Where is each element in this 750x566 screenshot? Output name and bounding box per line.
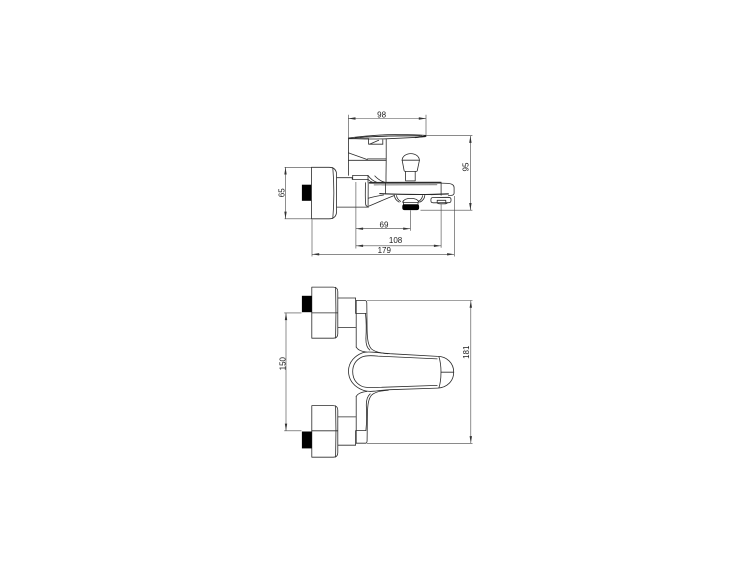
svg-text:181: 181 (462, 345, 471, 359)
svg-text:98: 98 (377, 111, 386, 120)
svg-text:65: 65 (278, 188, 287, 197)
svg-text:95: 95 (462, 162, 471, 171)
svg-text:108: 108 (389, 236, 403, 245)
svg-text:179: 179 (378, 246, 392, 255)
svg-text:69: 69 (380, 221, 389, 230)
svg-text:150: 150 (279, 356, 288, 370)
